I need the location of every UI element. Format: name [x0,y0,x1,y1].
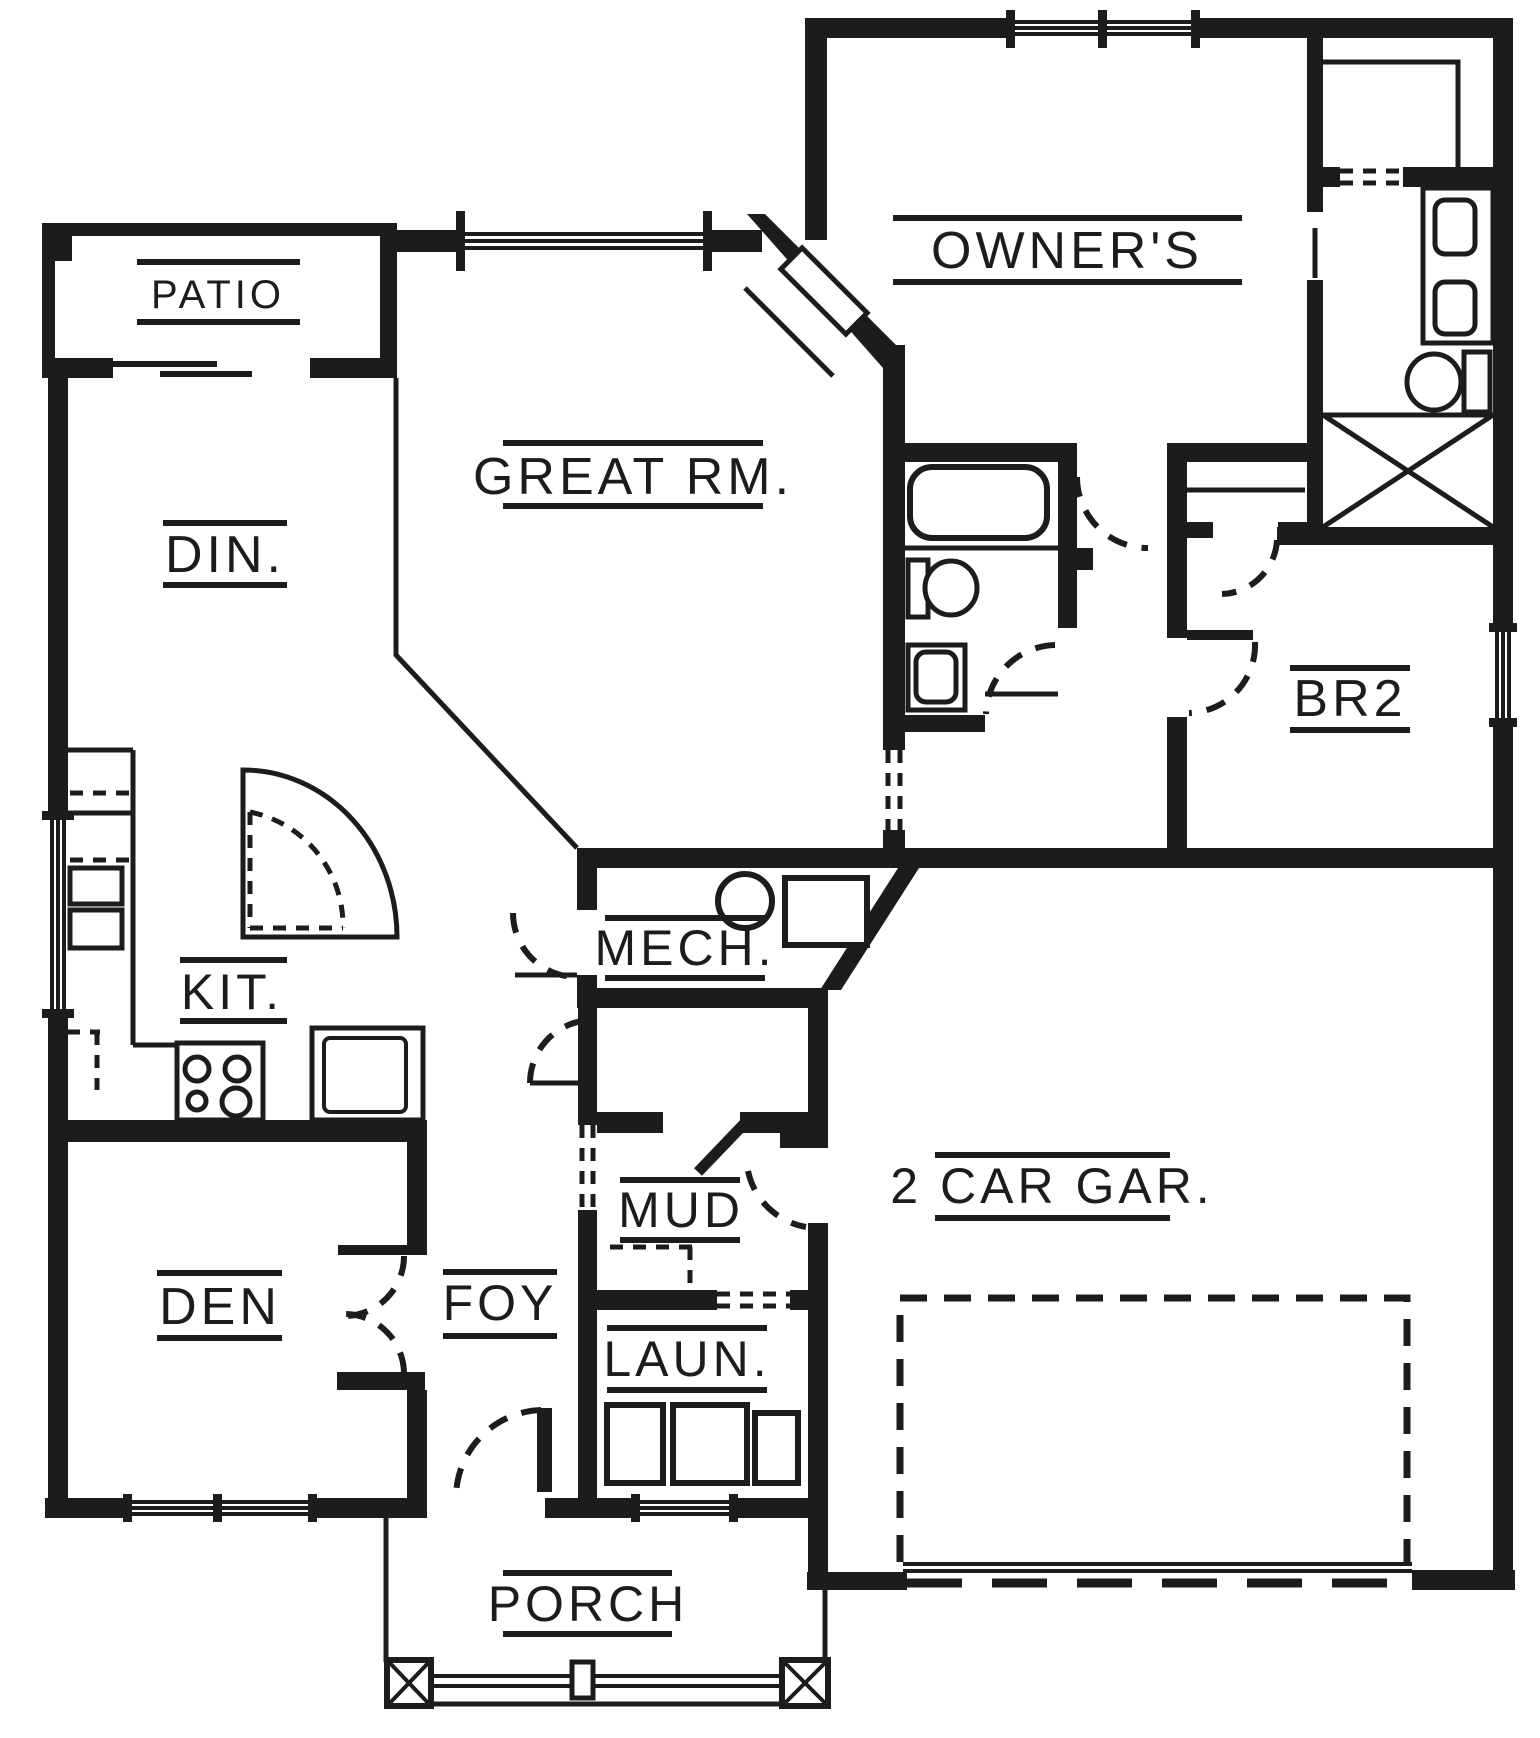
hall-bath-door-swing [986,645,1055,714]
room-name: MUD [618,1182,744,1238]
garage-elements [900,1298,1412,1583]
wall [1167,717,1187,848]
door-jamb [338,1245,408,1255]
wall [578,1210,597,1290]
room-name: DEN [159,1278,281,1336]
wall [883,830,905,848]
room-name: DIN. [165,526,285,584]
door-jamb [337,1372,425,1390]
floor-plan: PATIO DIN. GREAT RM. OWNER'S KIT. MECH. [0,0,1540,1738]
room-name: OWNER'S [931,222,1203,280]
wall [707,230,762,252]
label-great-room: GREAT RM. [473,443,793,506]
wall [1403,167,1493,187]
wall [577,868,597,910]
wall [545,1498,635,1518]
window [1489,623,1517,727]
wall [1307,38,1323,212]
room-name: LAUN. [603,1331,770,1387]
toilet [908,560,977,617]
label-bedroom-2: BR2 [1290,668,1410,730]
wall [577,848,1513,868]
wall [577,988,828,1008]
room-name: KIT. [181,964,283,1020]
wall [1307,280,1323,545]
wall [48,1013,68,1518]
pantry-shelf [250,812,343,928]
wall [905,715,985,732]
window [1006,10,1200,48]
porch-post [782,1660,828,1706]
wall [1167,443,1307,462]
wall [805,18,827,240]
label-owners-bedroom: OWNER'S [893,218,1242,282]
garage-door-track [900,1298,1407,1562]
window [631,1494,738,1522]
label-mechanical: MECH. [594,918,775,978]
wall [1167,443,1187,638]
laundry-tub [755,1413,798,1483]
linen-closet [1323,415,1493,527]
door-leaf [1187,630,1253,640]
wall [790,1290,808,1310]
window [123,1494,317,1522]
mud-door-leaf [698,1124,744,1172]
washer [607,1405,663,1483]
kitchen-casework [65,750,423,1120]
wall [1412,1570,1515,1590]
bathtub [910,467,1047,538]
wall [1187,522,1213,538]
upper-cabinet-corner [67,1032,100,1090]
corner-pantry [243,770,397,937]
floor-plan-drawing: PATIO DIN. GREAT RM. OWNER'S KIT. MECH. [0,0,1540,1738]
label-mud-room: MUD [618,1180,744,1240]
wall [780,1128,828,1148]
sink [908,645,965,710]
wall [1077,548,1093,570]
wall [1058,443,1077,628]
dryer [673,1405,747,1483]
wic-shelf-line [1323,62,1458,167]
wall [1493,18,1513,627]
wall [407,1142,427,1255]
label-den: DEN [157,1273,282,1338]
label-foyer: FOY [443,1272,558,1336]
label-kitchen: KIT. [180,960,287,1021]
owners-door-swing [1077,477,1148,548]
label-patio: PATIO [137,262,300,322]
mud-bench [610,1247,693,1292]
room-name: FOY [443,1275,558,1331]
porch-post [387,1660,431,1706]
br2-closet-door-swing [1222,540,1277,594]
toilet [1407,352,1490,412]
room-name: 2 CAR GAR. [890,1158,1213,1214]
wall [407,1390,427,1518]
wall [42,223,55,378]
range [177,1043,263,1120]
porch-step [572,1662,593,1698]
wall [883,345,905,750]
wall [380,235,397,378]
wall [597,1112,663,1133]
wall [808,1223,828,1572]
wall [42,358,113,378]
wall [42,223,397,236]
br2-door-swing [1189,642,1255,713]
wall [905,443,1077,462]
mech-door-swing [513,913,577,977]
furnace [785,878,867,945]
wall [577,975,597,988]
walls [42,18,1515,1590]
wall [808,1008,828,1148]
wall [1195,18,1513,38]
wall [65,1120,427,1142]
room-name: BR2 [1293,670,1406,728]
firebox [781,248,867,334]
refrigerator [70,868,122,904]
kitchen-sink [312,1028,423,1120]
wall [807,1572,907,1590]
wall [578,1290,597,1498]
label-garage: 2 CAR GAR. [890,1155,1213,1218]
wall [45,1498,127,1518]
room-name: MECH. [594,920,775,976]
front-door-swing [456,1410,541,1497]
wall [397,230,460,252]
wall-oven [70,910,122,948]
wall [597,1290,717,1310]
window [456,211,712,271]
room-name: GREAT RM. [473,448,793,506]
label-dining: DIN. [163,523,287,585]
label-porch: PORCH [488,1573,689,1634]
room-name: PORCH [488,1576,689,1632]
wall [733,1498,808,1518]
den-door-swing [344,1256,404,1316]
corner-fireplace [745,248,867,376]
wall [805,18,1010,38]
front-door-leaf [537,1408,552,1492]
den-door-swing [344,1314,404,1372]
garage-entry-door-swing [748,1171,806,1227]
owners-bath-fixtures [1407,188,1493,412]
double-vanity [1423,188,1493,343]
wall [1323,167,1340,187]
label-laundry: LAUN. [603,1328,770,1390]
room-name: PATIO [151,273,285,317]
hall-bath-fixtures [908,467,1047,710]
